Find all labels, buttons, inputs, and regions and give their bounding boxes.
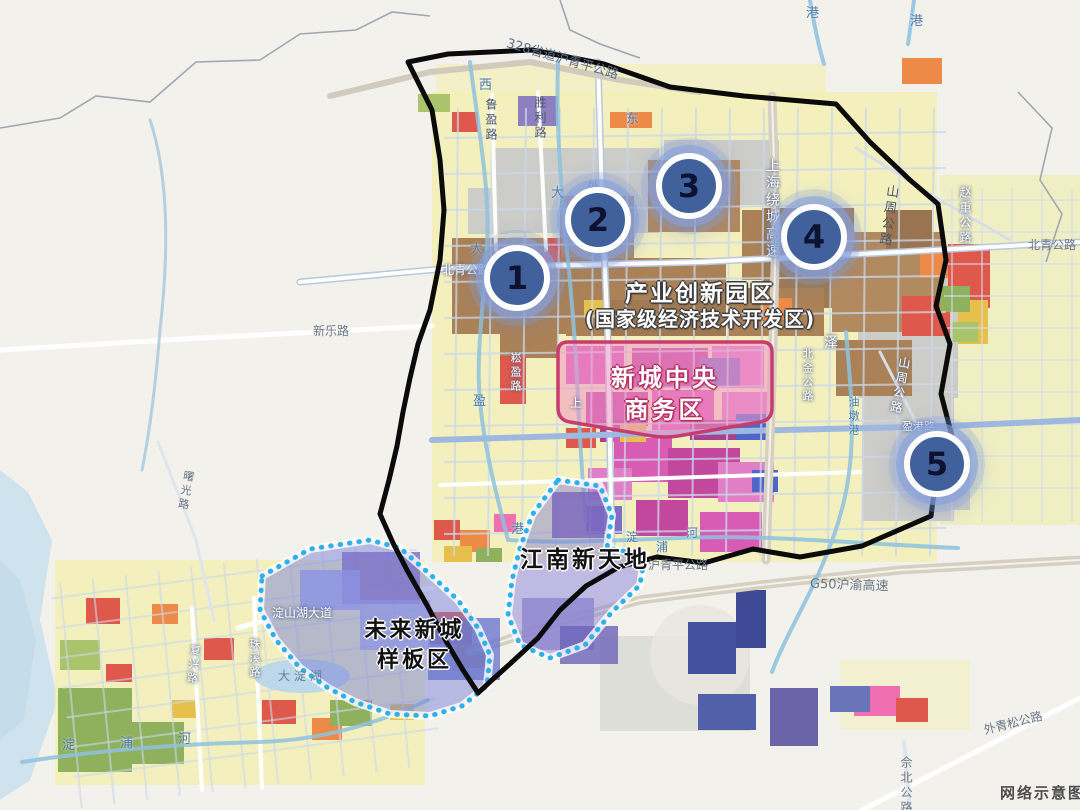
marker-3: 3 (656, 153, 722, 219)
water-bodies (0, 470, 58, 800)
map-canvas (0, 0, 1080, 810)
cbd-box (558, 342, 772, 437)
marker-1: 1 (484, 245, 550, 311)
marker-4: 4 (781, 204, 847, 270)
marker-2: 2 (565, 187, 631, 253)
marker-5: 5 (904, 431, 970, 497)
planning-map: 328省道沪青平公路 西 东 港 港 胜利路 鲁盈路 大 大 外青松公路 上海绕… (0, 0, 1080, 810)
